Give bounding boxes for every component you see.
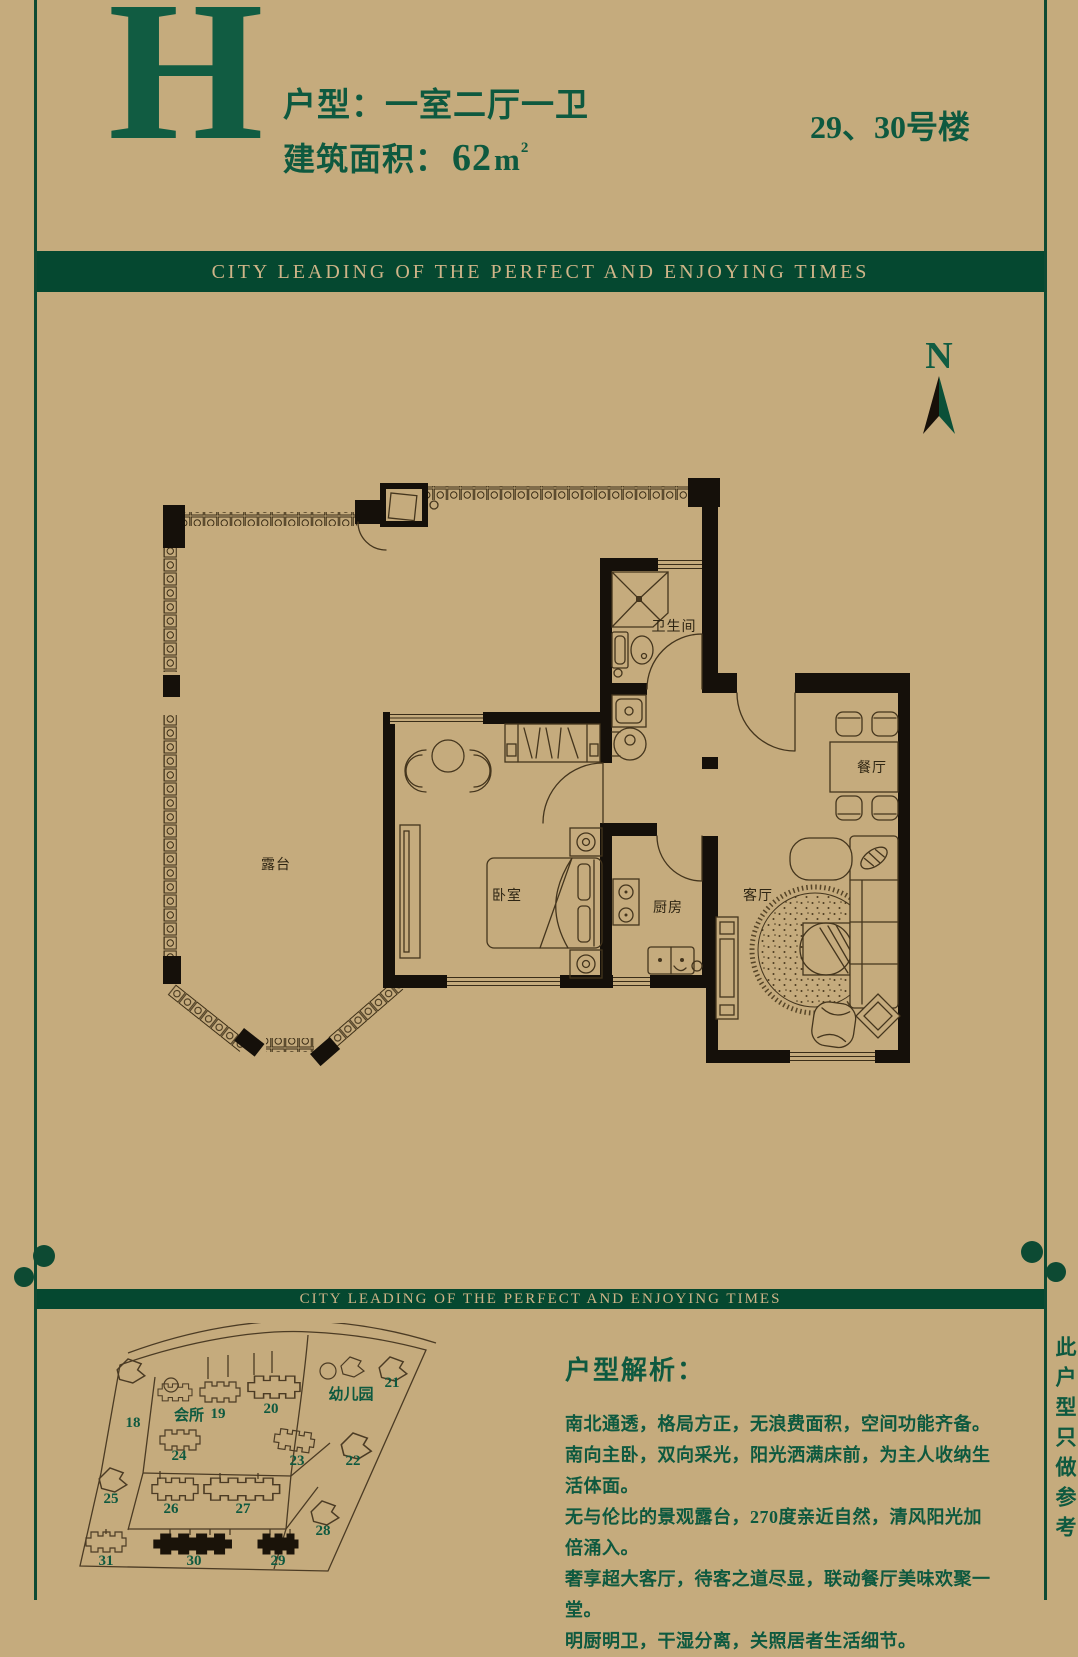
site-label-26: 26 (164, 1501, 180, 1517)
area-superscript: 2 (521, 140, 530, 156)
analysis-line: 南北通透，格局方正，无浪费面积，空间功能齐备。 (565, 1409, 995, 1440)
plan-letter: H (108, 0, 264, 172)
floorplan: 露台 卧室 卫生间 厨房 客厅 餐厅 (150, 460, 920, 1070)
room-label-terrace: 露台 (261, 857, 291, 873)
bottom-banner: CITY LEADING OF THE PERFECT AND ENJOYING… (37, 1289, 1044, 1309)
site-label-29: 29 (271, 1553, 286, 1569)
area-line: 建筑面积：62m2 (283, 126, 589, 182)
bathroom-fixtures (612, 572, 702, 760)
area-value: 62 (448, 137, 492, 179)
compass: N (903, 332, 973, 442)
decor-dot (33, 1245, 55, 1267)
site-label-25: 25 (104, 1491, 119, 1507)
side-note-vertical: 此户型只做参考 (1050, 1336, 1078, 1566)
living-furniture (716, 836, 900, 1049)
building-29-highlight (258, 1534, 298, 1554)
site-label-clubhouse: 会所 (174, 1406, 204, 1424)
kitchen-fixtures (613, 879, 702, 974)
compass-north-label: N (925, 335, 952, 377)
unit-type-label: 户型：一室二厅一卫 (283, 86, 589, 126)
analysis-title: 户型解析： (565, 1350, 995, 1387)
site-label-20: 20 (264, 1401, 279, 1417)
room-label-bedroom: 卧室 (492, 887, 522, 904)
site-label-27: 27 (236, 1501, 252, 1517)
site-label-28: 28 (316, 1523, 331, 1539)
left-border-line (34, 0, 37, 1600)
site-label-31: 31 (99, 1553, 114, 1569)
room-label-living: 客厅 (743, 887, 773, 904)
decor-dot (14, 1267, 34, 1287)
analysis-line: 明厨明卫，干湿分离，关照居者生活细节。 (565, 1626, 995, 1657)
site-label-30: 30 (187, 1553, 202, 1569)
analysis-block: 户型解析： 南北通透，格局方正，无浪费面积，空间功能齐备。 南向主卧，双向采光，… (565, 1350, 995, 1657)
site-label-24: 24 (172, 1448, 188, 1464)
room-label-dining: 餐厅 (857, 760, 887, 776)
building-number: 29、30号楼 (770, 102, 1010, 148)
site-label-18: 18 (126, 1415, 141, 1431)
bedroom-furniture (400, 724, 602, 978)
compass-needle-icon (923, 376, 955, 434)
site-label-kindergarten: 幼儿园 (328, 1385, 373, 1403)
right-border-line (1044, 0, 1047, 1600)
area-unit: m (492, 142, 521, 177)
site-label-22: 22 (346, 1453, 361, 1469)
site-label-19: 19 (211, 1406, 226, 1422)
decor-dot (1021, 1241, 1043, 1263)
room-label-kitchen: 厨房 (653, 900, 683, 916)
site-label-21: 21 (385, 1375, 400, 1391)
header-unit-info: 户型：一室二厅一卫 建筑面积：62m2 (283, 86, 589, 182)
analysis-line: 无与伦比的景观露台，270度亲近自然，清风阳光加倍涌入。 (565, 1502, 995, 1564)
analysis-line: 南向主卧，双向采光，阳光洒满床前，为主人收纳生活体面。 (565, 1440, 995, 1502)
site-label-23: 23 (290, 1453, 305, 1469)
area-label: 建筑面积： (283, 141, 448, 177)
decor-dot (1046, 1262, 1066, 1282)
top-banner: CITY LEADING OF THE PERFECT AND ENJOYING… (37, 251, 1044, 292)
room-label-bathroom: 卫生间 (652, 619, 697, 635)
analysis-line: 奢享超大客厅，待客之道尽显，联动餐厅美味欢聚一堂。 (565, 1564, 995, 1626)
site-map: 18 会所 19 20 幼儿园 21 24 23 22 25 26 27 28 … (58, 1323, 463, 1593)
building-30-highlight (154, 1534, 231, 1554)
